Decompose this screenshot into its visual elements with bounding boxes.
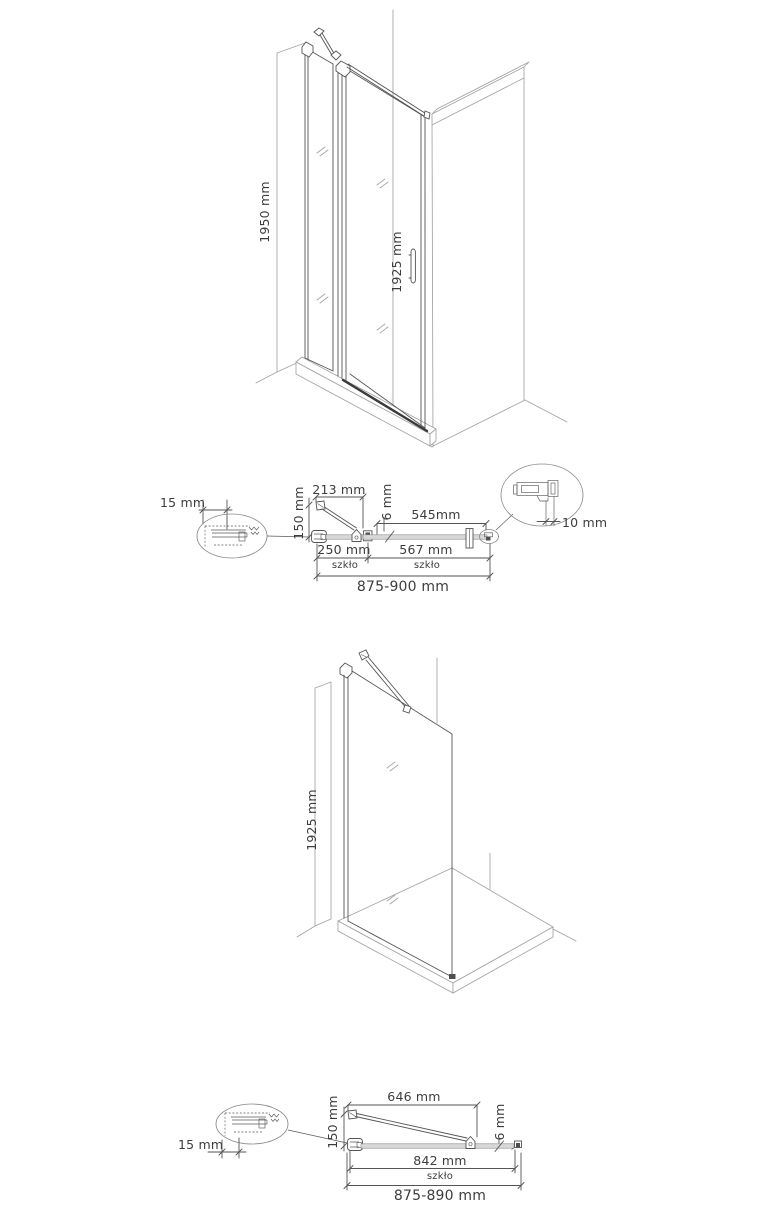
shower-tray: [296, 357, 436, 446]
door-glass-material-label: szkło: [414, 560, 440, 571]
shower-tray: [338, 868, 576, 993]
bar-offset-label: 150 mm: [291, 486, 306, 539]
door-total-width-label: 875-900 mm: [357, 579, 449, 595]
wall-profile-detail: [216, 1104, 288, 1144]
fixed-panel-glass: [302, 42, 333, 371]
bar-offset-label: 150 mm: [325, 1095, 340, 1148]
panel-plan-section: 15 mm 646 mm 150 mm 6 mm 842 mm: [178, 1089, 524, 1204]
wall-profile-depth-label: 15 mm: [178, 1137, 223, 1152]
glass-material-label: szkło: [427, 1171, 453, 1182]
panel-foot: [449, 974, 456, 979]
bar-length-label: 213 mm: [312, 482, 365, 497]
bar-glass-clamp: [403, 705, 411, 713]
glass-thickness-label: 6 mm: [492, 1103, 507, 1140]
wall-profile-depth-label: 15 mm: [160, 495, 205, 510]
panel-top-cap: [302, 42, 313, 57]
door-width-label: 545mm: [411, 507, 460, 522]
bar-length-dimension: [345, 1102, 480, 1137]
bar-length-dimension: [313, 494, 366, 528]
wall-profile: [348, 1139, 363, 1151]
panel-top-cap: [340, 663, 352, 678]
door-isometric-view: 1950 mm 1925 mm: [256, 10, 567, 447]
bar-length-label: 646 mm: [387, 1089, 440, 1104]
glass-thickness-label: 6 mm: [379, 483, 394, 520]
bar-anchor: [314, 28, 324, 36]
door-glass-width-label: 567 mm: [399, 542, 452, 557]
door-wall-height-label: 1950 mm: [257, 181, 272, 243]
panel-total-width-label: 875-890 mm: [394, 1188, 486, 1204]
glass-reflection-marks: [387, 762, 398, 904]
detail-leader-line: [496, 514, 513, 530]
bar-anchor: [359, 650, 369, 660]
wall-profile: [312, 531, 327, 543]
bracket-gap-label: 10 mm: [562, 515, 607, 530]
panel-glass-height-label: 1925 mm: [304, 789, 319, 851]
door-glass-height-label: 1925 mm: [389, 231, 404, 293]
glass-width-label: 842 mm: [413, 1153, 466, 1168]
bar-offset-dimension: [341, 1107, 347, 1151]
door-hinge-frame: [336, 61, 350, 380]
bracket-gap-dimension: [537, 519, 560, 525]
glass-reflection-marks: [377, 179, 388, 333]
shower-enclosure-drawing: 1950 mm 1925 mm 15 mm: [0, 0, 784, 1216]
fixed-glass-width-label: 250 mm: [317, 542, 370, 557]
bar-glass-clamp: [352, 530, 361, 542]
support-bar: [314, 28, 430, 119]
door-handle: [409, 249, 415, 283]
wall-profile-detail: [197, 514, 267, 558]
panel-isometric-view: 1925 mm: [297, 650, 576, 993]
shower-door-glass: [343, 71, 427, 431]
door-plan-section: 15 mm: [160, 464, 607, 595]
bar-offset-dimension: [306, 498, 312, 542]
technical-drawing-page: 1950 mm 1925 mm 15 mm: [0, 0, 784, 1216]
fixed-glass-material-label: szkło: [332, 560, 358, 571]
panel-glass-plan: [361, 1144, 514, 1148]
glass-reflection-marks: [317, 147, 328, 303]
support-bar-plan: [348, 1110, 475, 1149]
bar-wall-mount: [424, 111, 430, 119]
room-walls: [256, 10, 567, 447]
